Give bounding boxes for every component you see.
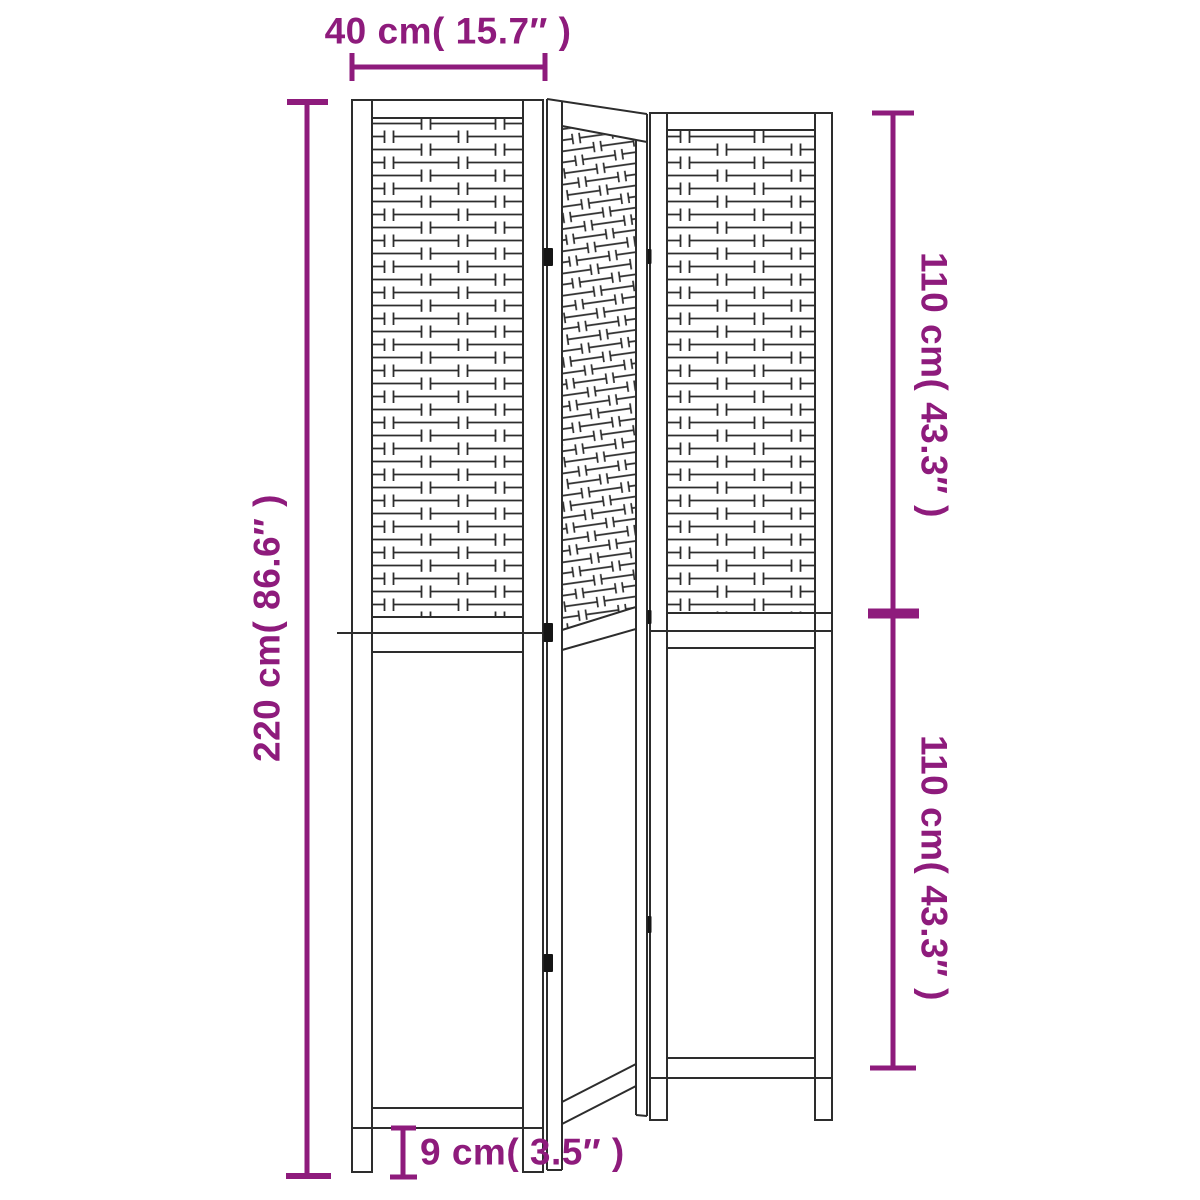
dim-total-height [286,102,331,1176]
hinge-left-top [544,248,554,266]
hinge-right-bottom [648,916,652,933]
hinge-left-bottom [544,954,554,972]
dim-label-upper-section: 110 cm( 43.3″ ) [916,252,953,518]
dim-label-foot-height: 9 cm( 3.5″ ) [420,1134,625,1171]
panel-left [337,100,543,1172]
dim-lower-section [868,616,919,1068]
dim-width [352,53,545,81]
panel-left-lattice [372,118,523,617]
dim-label-width: 40 cm( 15.7″ ) [325,13,572,50]
dim-label-total-height: 220 cm( 86.6″ ) [249,494,286,762]
panel-right [650,113,832,1120]
hinge-right-top [648,249,652,264]
panel-right-lattice [667,130,815,613]
panel-left-foot-left [352,1128,372,1172]
dim-upper-section [868,113,919,611]
dim-foot-height [390,1128,417,1177]
dim-label-lower-section: 110 cm( 43.3″ ) [916,735,953,1001]
panel-right-foot-left [650,1078,667,1120]
hinge-left-middle [544,623,554,642]
diagram-canvas: 40 cm( 15.7″ ) 220 cm( 86.6″ ) 110 cm( 4… [0,0,1200,1200]
panel-right-foot-right [815,1078,832,1120]
hinge-right-middle [648,610,652,624]
room-divider-drawing [0,0,1200,1200]
